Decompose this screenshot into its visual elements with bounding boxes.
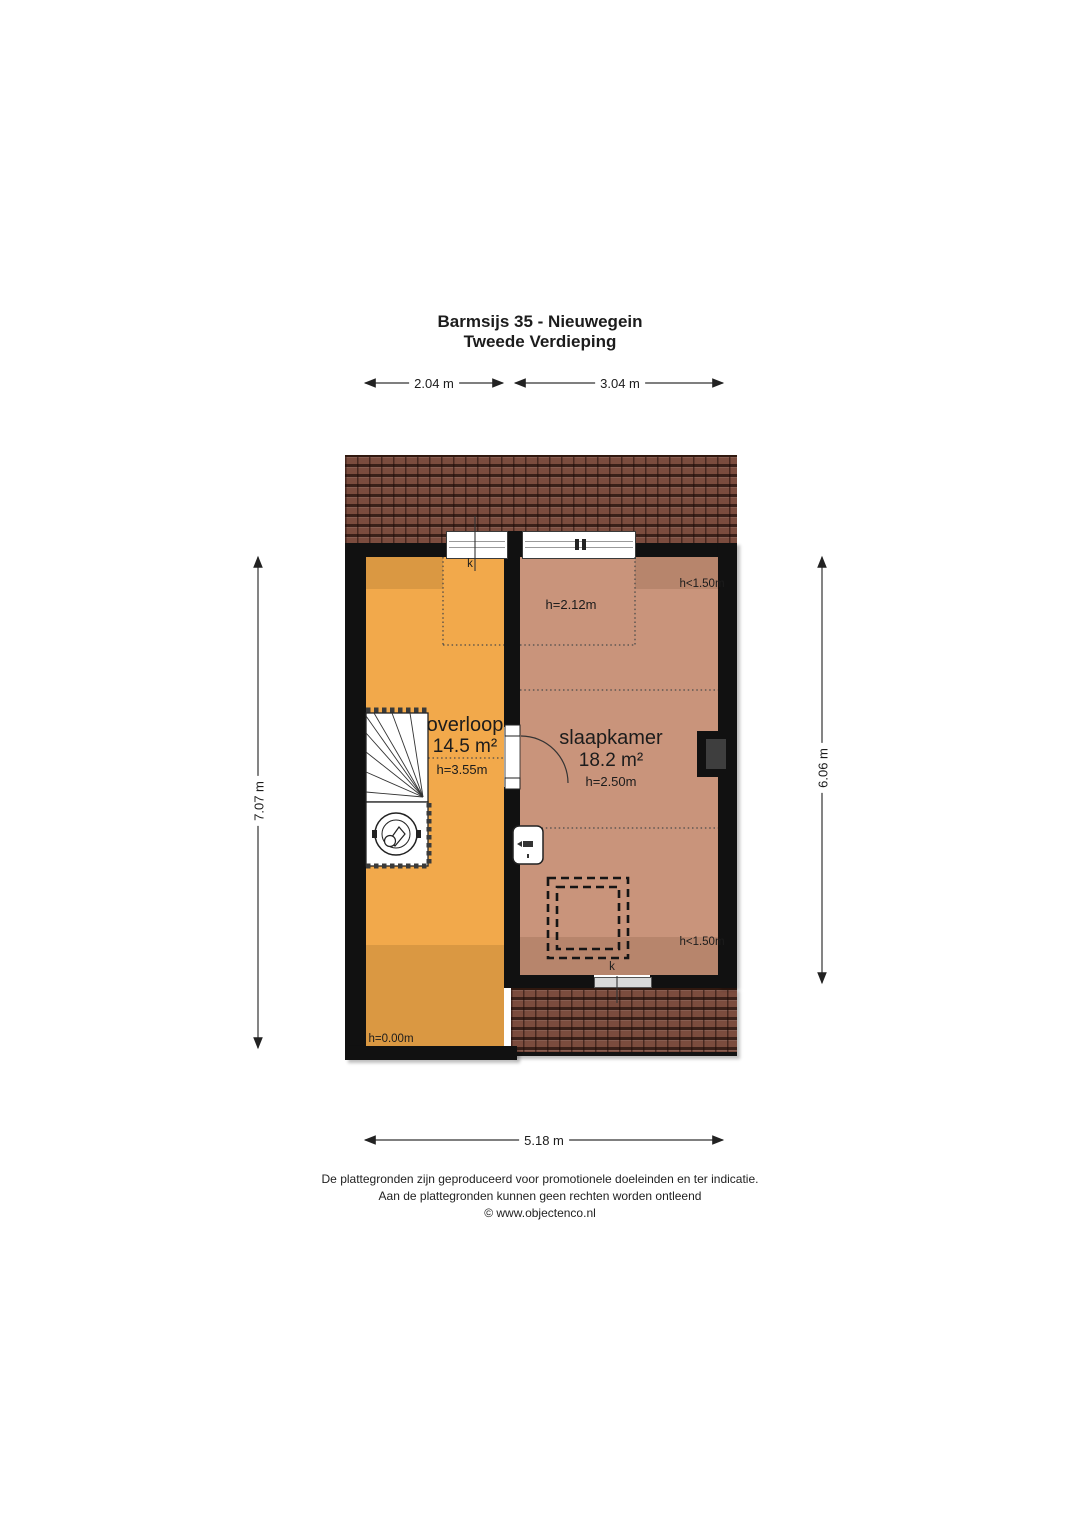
plan-linework [0,0,1080,1527]
floor-level-label: h=0.00m [368,1033,413,1045]
disclaimer-line-3: © www.objectenco.nl [0,1205,1080,1222]
staircase [366,710,430,866]
dim-label-top-right: 3.04 m [595,376,645,391]
floorplan-page: { "title": { "line1": "Barmsijs 35 - Nie… [0,0,1080,1527]
room-height-slaapkamer: h=2.50m [586,774,637,789]
low-headroom-label-top: h<1.50m [679,578,724,590]
room-label-overloop: overloop [427,714,504,737]
dimension-lines [258,383,822,1140]
disclaimer: De plattegronden zijn geproduceerd voor … [0,1171,1080,1222]
room-area-overloop: 14.5 m² [433,736,497,758]
disclaimer-line-2: Aan de plattegronden kunnen geen rechten… [0,1188,1080,1205]
room-area-slaapkamer: 18.2 m² [579,750,643,772]
skylight-label-top: k [467,558,473,570]
low-headroom-label-bottom: h<1.50m [679,936,724,948]
room-label-slaapkamer: slaapkamer [559,727,662,750]
dim-label-bottom: 5.18 m [519,1133,569,1148]
dim-label-top-left: 2.04 m [409,376,459,391]
room-height-overloop: h=3.55m [437,762,488,777]
ventilation-unit [513,826,543,864]
dim-label-left: 7.07 m [252,776,267,826]
dormer-height-label: h=2.12m [546,597,597,612]
disclaimer-line-1: De plattegronden zijn geproduceerd voor … [0,1171,1080,1188]
dim-label-right: 6.06 m [816,743,831,793]
roof-opening-outline [548,878,628,958]
skylight-label-bottom: k [609,961,615,973]
